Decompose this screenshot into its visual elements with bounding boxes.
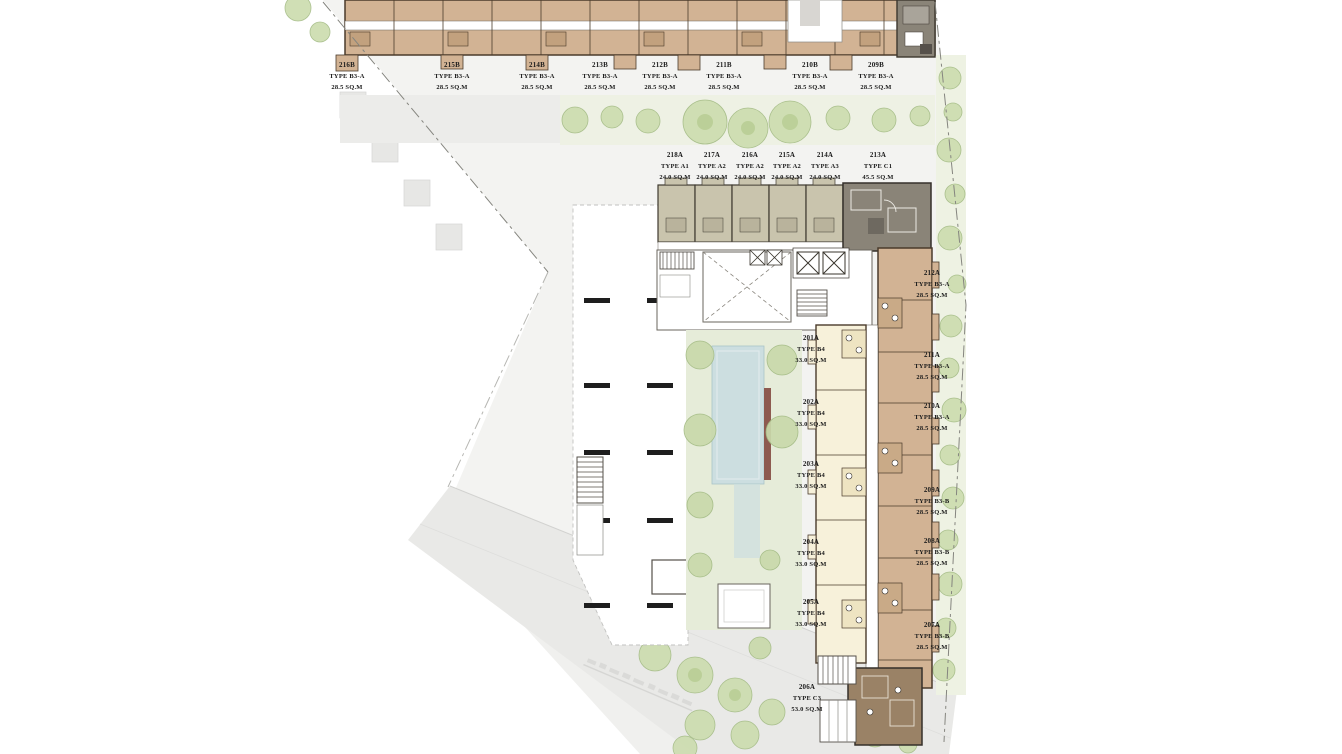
courtyard-pool (684, 330, 802, 659)
floor-plan: 216B TYPE B3-A 28.5 SQ.M 215B TYPE B3-A … (0, 0, 1342, 754)
elevator-boxes (793, 248, 849, 278)
corridor (866, 325, 878, 688)
c1-unit (843, 183, 931, 251)
stall-grid (820, 700, 856, 742)
parking-stair (577, 457, 603, 555)
core-elevators-stairs (657, 248, 872, 330)
a-row-units (658, 178, 931, 251)
stair-lower (797, 290, 827, 316)
stair-top-left (660, 252, 694, 269)
unit-206-block (818, 656, 922, 745)
swimming-pool (712, 346, 764, 484)
pavilion (718, 584, 770, 628)
corner-unit-gray (897, 0, 935, 57)
site-plan-graphics (0, 0, 1342, 754)
stair-bottom (818, 656, 856, 684)
